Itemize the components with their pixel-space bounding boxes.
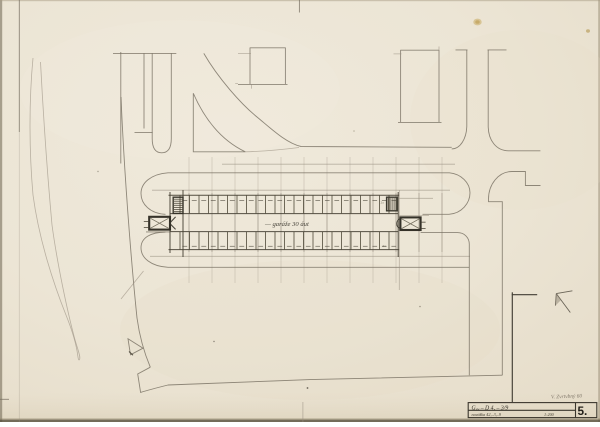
svg-text:Gvv – D 4, – 3/9: Gvv – D 4, – 3/9: [472, 404, 509, 411]
svg-text:— garáže 30 áut: — garáže 30 áut: [264, 221, 309, 228]
svg-text:1:200: 1:200: [544, 412, 555, 417]
svg-text:5.: 5.: [578, 404, 588, 418]
svg-text:2a: 2a: [381, 201, 385, 205]
svg-text:2a: 2a: [383, 244, 387, 248]
svg-text:V. Zvrtvbný 60: V. Zvrtvbný 60: [551, 393, 583, 400]
